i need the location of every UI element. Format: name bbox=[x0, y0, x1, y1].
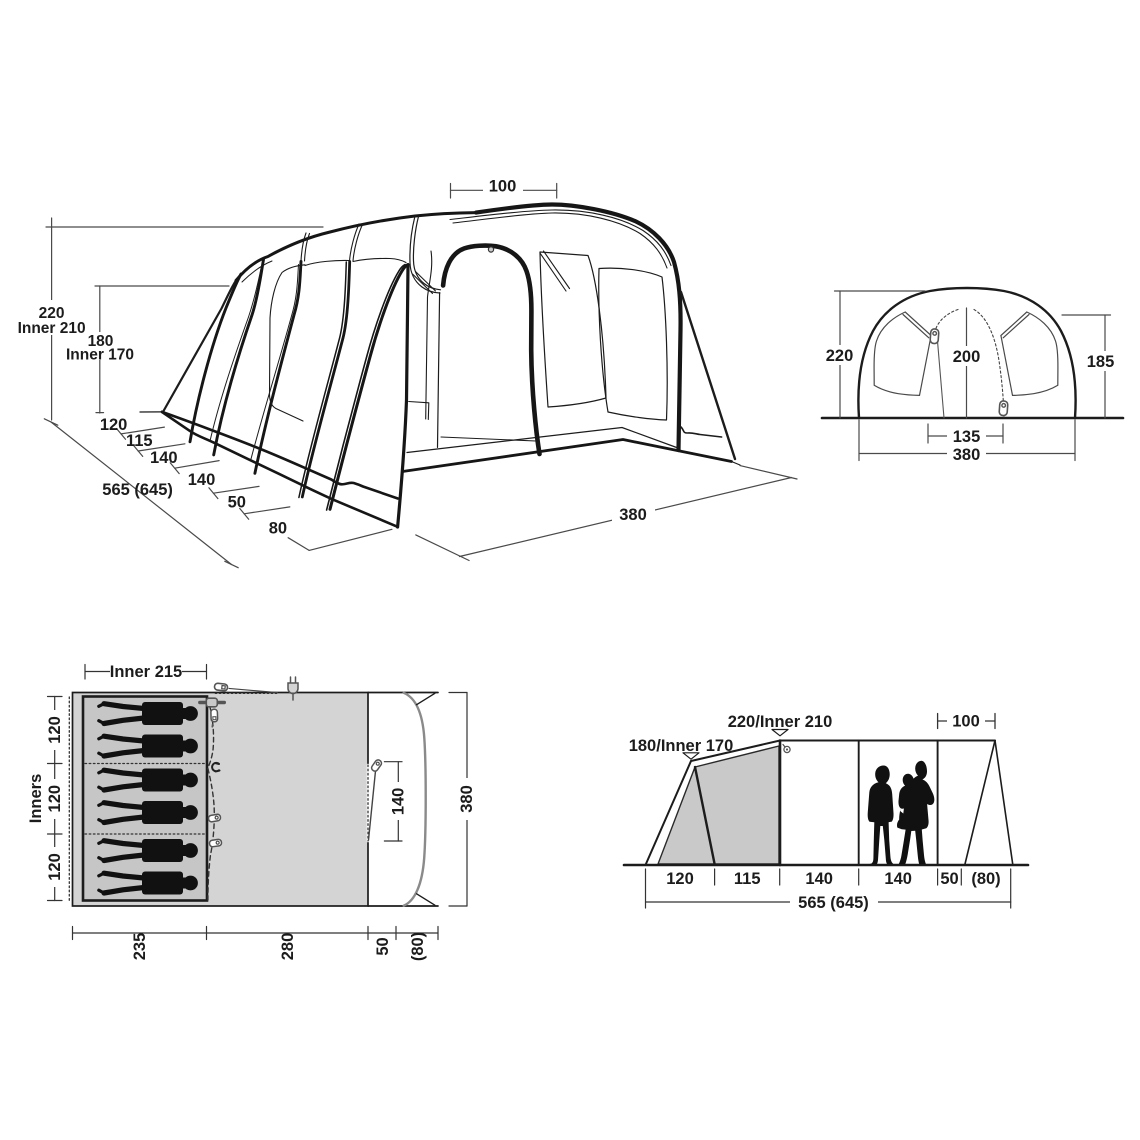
svg-text:140: 140 bbox=[805, 870, 833, 888]
svg-text:200: 200 bbox=[953, 348, 981, 366]
svg-text:565 (645): 565 (645) bbox=[102, 481, 173, 499]
svg-text:100: 100 bbox=[489, 178, 517, 196]
svg-text:380: 380 bbox=[953, 446, 981, 464]
svg-text:220: 220 bbox=[826, 347, 854, 365]
svg-text:Inner 170: Inner 170 bbox=[66, 347, 134, 364]
svg-text:140: 140 bbox=[150, 449, 178, 467]
svg-text:140: 140 bbox=[884, 870, 912, 888]
svg-text:Inners: Inners bbox=[27, 774, 45, 824]
svg-text:140: 140 bbox=[188, 471, 216, 489]
svg-text:Inner 210: Inner 210 bbox=[18, 320, 86, 337]
svg-text:380: 380 bbox=[619, 506, 647, 524]
svg-text:100: 100 bbox=[952, 713, 980, 731]
svg-text:(80): (80) bbox=[971, 870, 1000, 888]
svg-text:380: 380 bbox=[458, 785, 476, 813]
svg-text:120: 120 bbox=[666, 870, 694, 888]
svg-text:120: 120 bbox=[46, 785, 64, 813]
svg-text:235: 235 bbox=[131, 933, 149, 961]
svg-text:280: 280 bbox=[279, 933, 297, 961]
svg-text:50: 50 bbox=[374, 937, 392, 955]
svg-text:135: 135 bbox=[953, 428, 981, 446]
svg-text:120: 120 bbox=[46, 853, 64, 881]
svg-text:180/Inner 170: 180/Inner 170 bbox=[629, 737, 734, 755]
svg-text:Inner 215: Inner 215 bbox=[110, 663, 182, 681]
svg-text:185: 185 bbox=[1087, 353, 1115, 371]
svg-text:120: 120 bbox=[46, 716, 64, 744]
svg-text:50: 50 bbox=[228, 494, 246, 512]
svg-text:80: 80 bbox=[269, 520, 287, 538]
svg-text:115: 115 bbox=[126, 432, 153, 450]
svg-text:140: 140 bbox=[390, 788, 408, 816]
svg-text:565 (645): 565 (645) bbox=[798, 894, 869, 912]
svg-text:50: 50 bbox=[940, 870, 958, 888]
svg-text:(80): (80) bbox=[409, 932, 427, 961]
svg-text:115: 115 bbox=[734, 870, 761, 888]
svg-text:220/Inner 210: 220/Inner 210 bbox=[728, 713, 833, 731]
svg-text:120: 120 bbox=[100, 416, 128, 434]
